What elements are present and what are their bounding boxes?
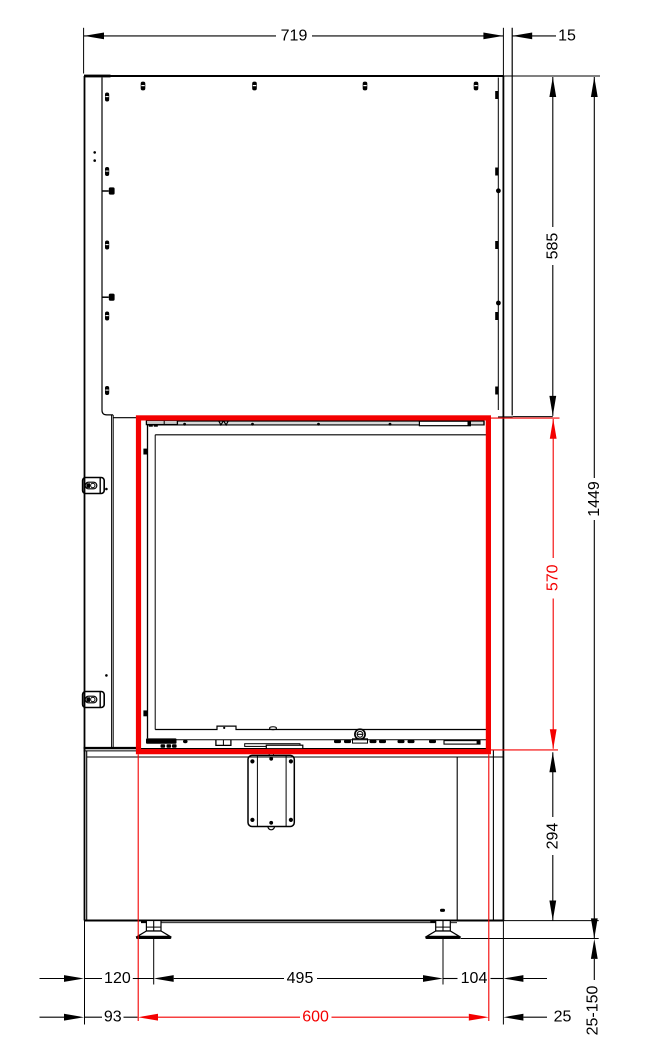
svg-text:93: 93 <box>104 1009 122 1026</box>
svg-text:25-150: 25-150 <box>585 985 602 1035</box>
svg-text:719: 719 <box>281 28 308 45</box>
svg-text:15: 15 <box>558 28 576 45</box>
svg-text:585: 585 <box>544 233 561 260</box>
svg-text:570: 570 <box>545 564 562 591</box>
svg-text:1449: 1449 <box>586 481 603 517</box>
svg-text:600: 600 <box>302 1009 329 1026</box>
svg-text:104: 104 <box>461 970 488 987</box>
svg-text:120: 120 <box>104 970 131 987</box>
svg-text:495: 495 <box>287 970 314 987</box>
svg-text:25: 25 <box>554 1009 572 1026</box>
svg-text:294: 294 <box>544 823 561 850</box>
